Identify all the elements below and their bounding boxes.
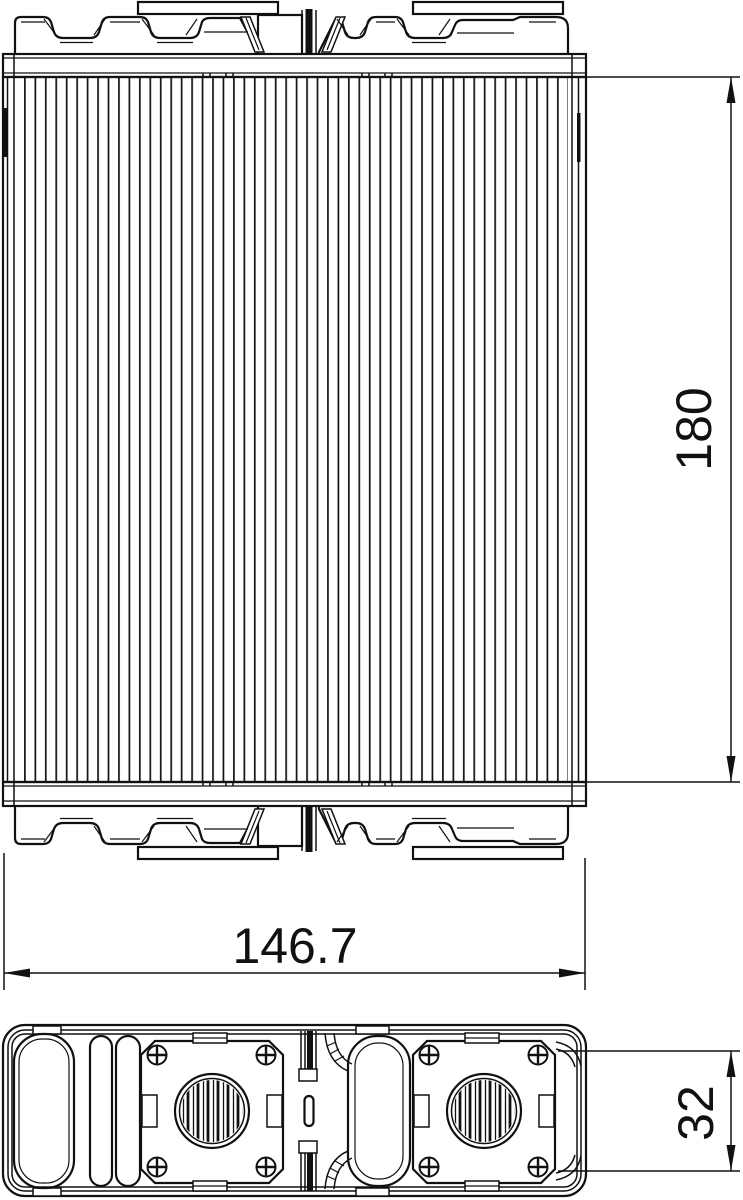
- arrowhead-down-icon: [727, 756, 736, 782]
- edge-tab: [356, 1026, 389, 1034]
- front-view: [3, 2, 586, 859]
- depth-dimension-label: 32: [668, 1085, 724, 1141]
- bottom-tank-ribs: [138, 847, 563, 859]
- top-tank-ribs: [138, 2, 563, 14]
- right-port-flange: [413, 1033, 555, 1191]
- dimension-height: 180: [570, 77, 740, 782]
- bottom-header-plate: [3, 782, 586, 806]
- center-slot: [305, 1096, 314, 1126]
- top-header-plate: [3, 54, 586, 77]
- arrowhead-down-icon: [727, 1145, 736, 1171]
- core-fins: [3, 77, 586, 782]
- fin-pattern: [24, 77, 568, 782]
- arrowhead-left-icon: [4, 969, 30, 978]
- middle-bracket-top-view: [299, 1031, 352, 1191]
- top-tank: [15, 9, 568, 56]
- edge-tab: [356, 1188, 389, 1196]
- heat-exchanger-drawing: 180 146.7: [0, 0, 743, 1200]
- bottom-bracket-block: [258, 805, 302, 846]
- technical-drawing-page: 180 146.7: [0, 0, 743, 1200]
- top-bracket-block: [258, 15, 302, 56]
- width-dimension-label: 146.7: [232, 918, 357, 974]
- bottom-clip: [302, 806, 316, 852]
- arrowhead-up-icon: [727, 77, 736, 103]
- bottom-view: [3, 1025, 586, 1196]
- side-plate-mark: [577, 113, 581, 162]
- arrowhead-right-icon: [559, 969, 585, 978]
- side-plate-mark: [4, 108, 8, 157]
- bottom-tank: [15, 805, 568, 852]
- height-dimension-label: 180: [666, 387, 722, 470]
- dimension-width: 146.7: [4, 853, 585, 990]
- left-port-flange: [141, 1033, 283, 1191]
- edge-tab: [33, 1026, 61, 1034]
- top-clip: [302, 9, 316, 55]
- edge-tab: [33, 1188, 61, 1196]
- arrowhead-up-icon: [727, 1051, 736, 1077]
